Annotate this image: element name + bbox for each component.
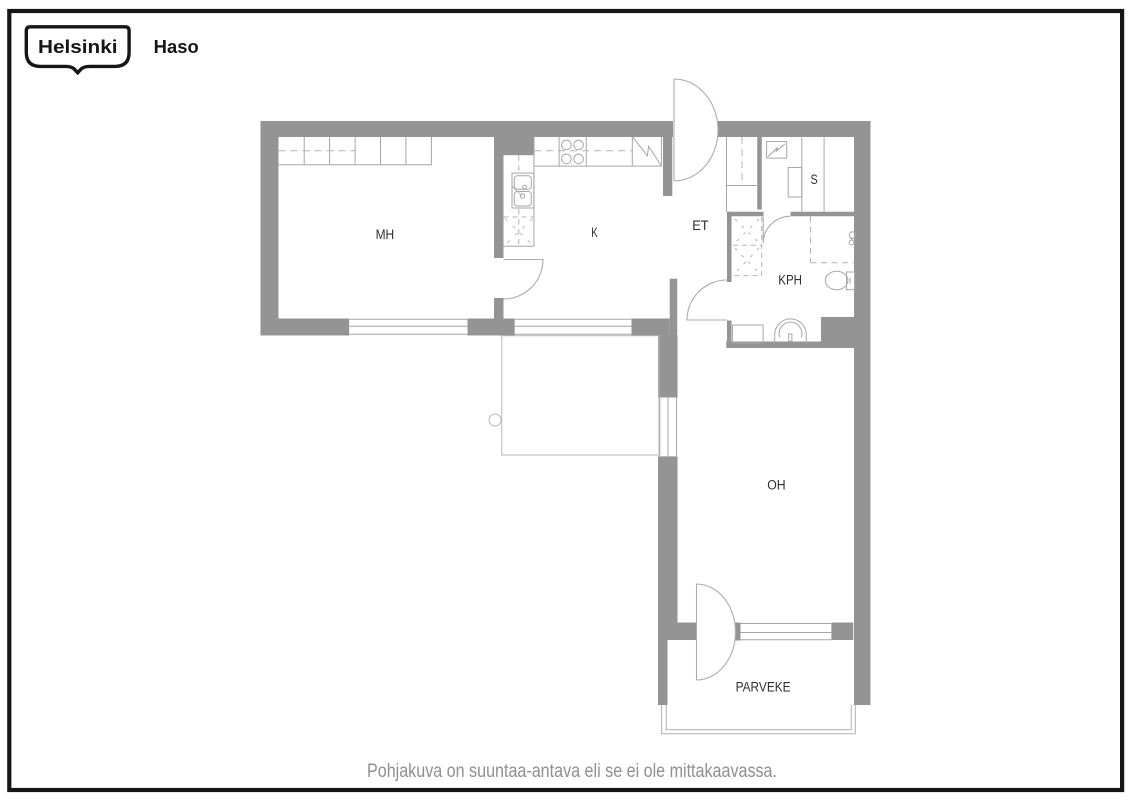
svg-text:Helsinki: Helsinki <box>38 37 118 57</box>
svg-text:S: S <box>811 172 818 187</box>
svg-text:PARVEKE: PARVEKE <box>736 679 791 694</box>
svg-text:K: K <box>591 225 598 240</box>
svg-text:KPH: KPH <box>778 272 802 287</box>
svg-text:Haso: Haso <box>154 37 199 57</box>
svg-text:OH: OH <box>767 477 785 492</box>
svg-text:ET: ET <box>692 218 709 233</box>
svg-text:Pohjakuva on suuntaa-antava el: Pohjakuva on suuntaa-antava eli se ei ol… <box>367 761 777 782</box>
svg-text:MH: MH <box>376 227 395 242</box>
